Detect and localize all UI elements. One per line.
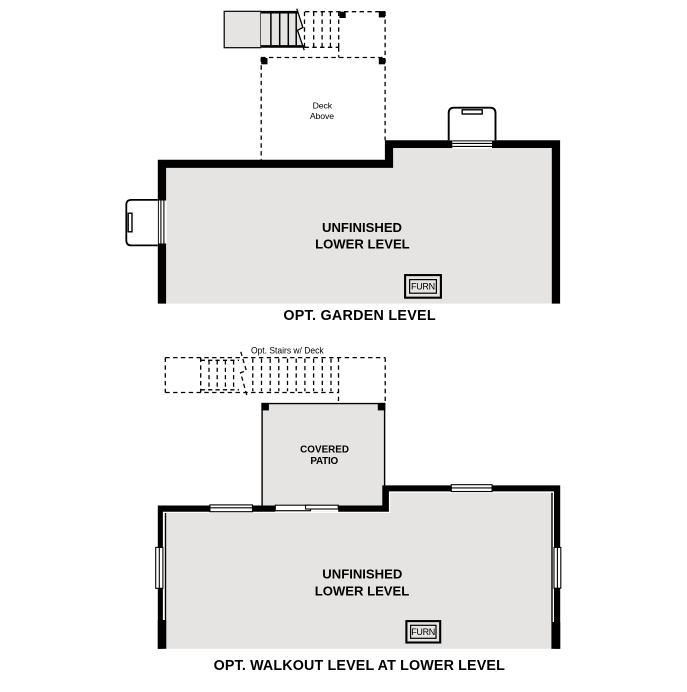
- svg-text:PATIO: PATIO: [310, 456, 338, 467]
- svg-text:OPT. GARDEN LEVEL: OPT. GARDEN LEVEL: [283, 308, 436, 324]
- svg-text:LOWER LEVEL: LOWER LEVEL: [315, 236, 410, 251]
- svg-text:LOWER LEVEL: LOWER LEVEL: [315, 583, 410, 598]
- svg-text:OPT. WALKOUT LEVEL AT LOWER LE: OPT. WALKOUT LEVEL AT LOWER LEVEL: [214, 658, 506, 674]
- svg-text:FURN: FURN: [411, 627, 435, 637]
- svg-text:Deck: Deck: [313, 101, 333, 111]
- svg-text:Above: Above: [310, 111, 334, 121]
- svg-text:FURN: FURN: [411, 281, 435, 291]
- svg-text:COVERED: COVERED: [300, 445, 349, 456]
- svg-text:UNFINISHED: UNFINISHED: [322, 220, 402, 235]
- svg-text:UNFINISHED: UNFINISHED: [322, 567, 402, 582]
- svg-text:Opt. Stairs w/ Deck: Opt. Stairs w/ Deck: [251, 346, 324, 356]
